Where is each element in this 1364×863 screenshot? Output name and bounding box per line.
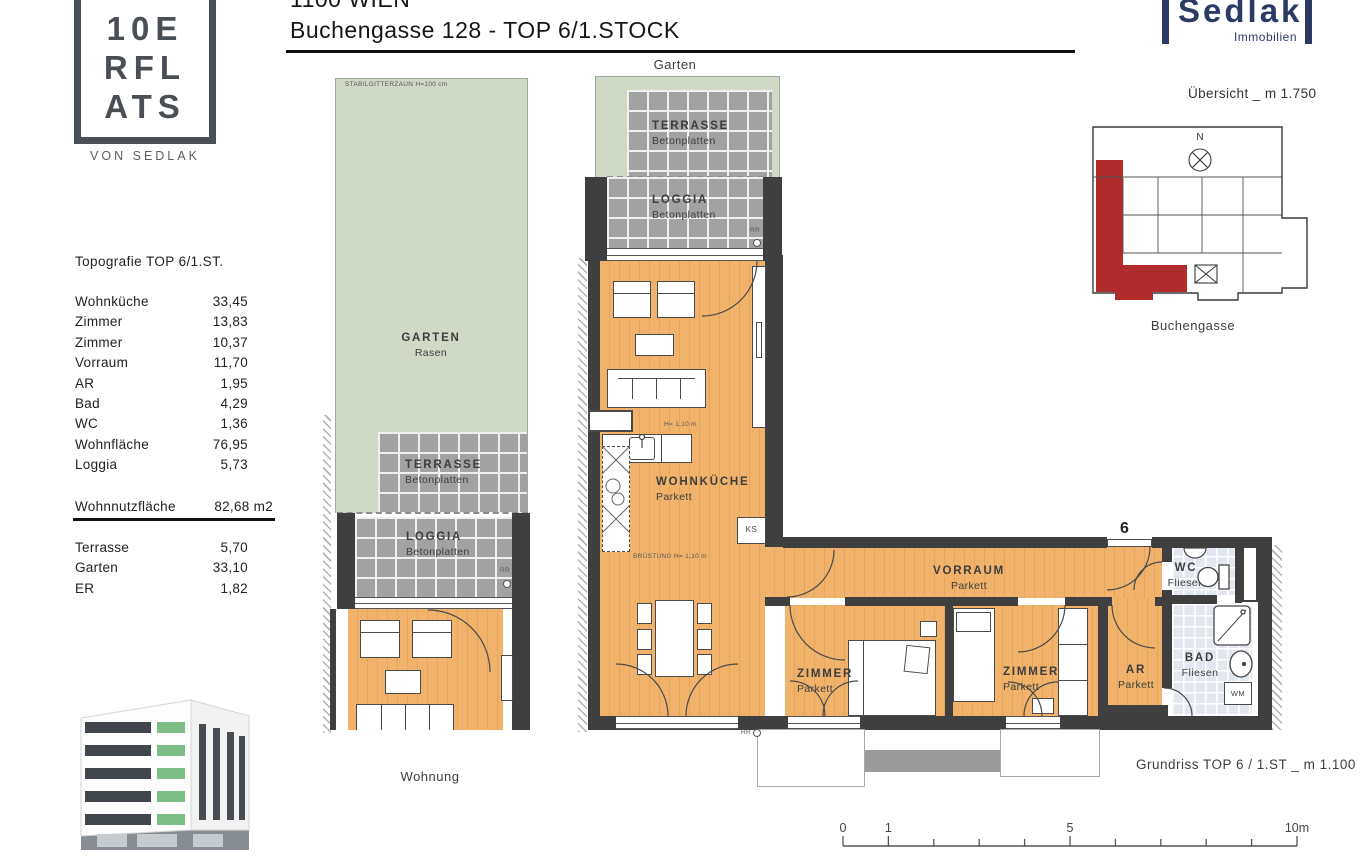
room-finish: Parkett [1003,681,1059,693]
wall-hatch [578,258,587,732]
french-balcony [1000,729,1100,777]
elevator-icon [1195,265,1217,283]
chair [637,654,652,675]
fence-note: STABILGITTERZAUN H=100 cm [345,81,448,88]
loggia-right-label: LOGGIA Betonplatten [652,194,716,221]
room-finish: Rasen [366,347,496,359]
wall-segment [783,537,1107,548]
shaft [1242,546,1258,602]
topografie-table: Wohnküche33,45 Zimmer13,83 Zimmer10,37 V… [75,294,248,478]
terrasse-left-label: TERRASSE Betonplatten [405,459,482,486]
coffee-table [635,334,674,356]
tenflats-logo: 10E RFL ATS [74,0,216,144]
sofa [356,704,454,730]
wall-segment [512,609,530,730]
wall-segment [588,261,600,730]
table-row: Zimmer13,83 [75,314,248,334]
wall-segment [585,177,607,261]
window [616,716,738,729]
logo-line-3: ATS [81,87,209,126]
kitchen-unit [602,446,630,552]
chair [697,603,712,624]
wall-segment [330,609,336,730]
room-finish: Parkett [1105,679,1167,691]
header-city: 1100 WIEN [290,0,410,13]
room-name: LOGGIA [652,194,716,206]
table-row: Wohnfläche76,95 [75,437,248,457]
total-rule [73,518,275,521]
room-finish: Fliesen [1157,577,1215,589]
garten-room-label: GARTEN Rasen [366,332,496,359]
scale-label-1: 1 [885,821,892,835]
desk [1032,698,1054,714]
sedlak-bracket-left [1162,0,1169,44]
wall-segment [845,597,1018,606]
scale-ticks [843,836,1297,846]
row-label: Bad [75,396,100,416]
room-finish: Betonplatten [405,474,482,486]
garten-direction-label: Garten [645,57,705,72]
table-row: WC1,36 [75,416,248,436]
header-rule [286,50,1075,53]
row-value: 13,83 [213,314,248,334]
entrance-door-leaf [1107,539,1152,547]
bruestung-note: BRÜSTUNG H= 1,10 m [633,553,707,560]
topografie-outdoor: Terrasse5,70 Garten33,10 ER1,82 [75,540,248,601]
row-value: 5,73 [221,457,248,477]
downpipe-icon [503,580,511,588]
wc-label: WC Fliesen [1157,562,1215,589]
row-label: Garten [75,560,118,580]
table-row: Wohnküche33,45 [75,294,248,314]
window-handle [756,322,762,358]
fridge: KS [737,517,766,544]
wall-segment [1172,595,1217,604]
logo-subtitle: VON SEDLAK [66,149,224,163]
scale-bar: 0 1 5 10m [840,822,1310,852]
chair [637,629,652,650]
table-row: Loggia5,73 [75,457,248,477]
window [588,410,633,432]
dining-table [655,600,694,677]
building-rendering [73,688,268,863]
scale-label-0: 0 [840,821,847,835]
row-label: Wohnfläche [75,437,149,457]
room-finish: Parkett [797,683,853,695]
scale-label-5: 5 [1067,821,1074,835]
table-row: Terrasse5,70 [75,540,248,560]
floorplan-page: 10E RFL ATS VON SEDLAK 1100 WIEN Bucheng… [0,0,1364,863]
room-name: ZIMMER [1003,666,1059,678]
terrasse-loggia-separator [337,512,528,514]
row-value: 5,70 [221,540,248,560]
room-finish: Parkett [656,491,750,503]
wall-segment [512,513,530,609]
room-finish: Fliesen [1168,667,1232,679]
vorraum-label: VORRAUM Parkett [904,565,1034,592]
zimmer1-label: ZIMMER Parkett [797,668,853,695]
row-label: Vorraum [75,355,128,375]
table-row: Bad4,29 [75,396,248,416]
table-row: Vorraum11,70 [75,355,248,375]
ar-label: AR Parkett [1105,664,1167,691]
scale-label-10m: 10m [1285,821,1309,835]
sedlak-logo: Sedlak Immobilien [1162,0,1312,56]
building-garage-doors [97,834,223,847]
chair [637,603,652,624]
downpipe-icon [753,729,761,737]
loggia-left-label: LOGGIA Betonplatten [406,531,470,558]
room-name: WOHNKÜCHE [656,476,750,488]
armchair [412,620,452,658]
room-name: TERRASSE [405,459,482,471]
loggia-left-window [355,597,512,609]
room-name: VORRAUM [904,565,1034,577]
wall-segment [763,177,782,261]
overview-street-label: Buchengasse [1128,318,1258,333]
room-name: AR [1105,664,1167,676]
row-value: 33,45 [213,294,248,314]
bad-label: BAD Fliesen [1168,652,1232,679]
wall-segment [1258,537,1272,730]
washing-machine: WM [1224,682,1252,705]
wall-hatch [1272,545,1282,730]
wohnkueche-label: WOHNKÜCHE Parkett [656,476,750,503]
coffee-table [385,670,421,694]
room-name: ZIMMER [797,668,853,680]
header-address: Buchengasse 128 - TOP 6/1.STOCK [290,17,680,44]
sedlak-name: Sedlak [1178,0,1302,30]
row-label: Zimmer [75,314,123,334]
zimmer2-label: ZIMMER Parkett [1003,666,1059,693]
row-value: 10,37 [213,335,248,355]
armchair [360,620,400,658]
wall-segment [765,255,783,547]
compass-north-label: N [1196,132,1203,143]
sedlak-subtitle: Immobilien [1234,30,1297,44]
loggia-right-window [607,248,763,261]
wohnung-label: Wohnung [395,769,465,784]
wall-segment [337,513,355,609]
row-label: AR [75,376,94,396]
room-finish: Betonplatten [652,209,716,221]
rr-note: RR [500,567,510,574]
window [1006,716,1060,729]
row-value: 76,95 [213,437,248,457]
wall-segment [945,597,953,716]
table-row: Zimmer10,37 [75,335,248,355]
sedlak-bracket-right [1305,0,1312,44]
row-label: Loggia [75,457,117,477]
unit-number: 6 [1120,520,1129,538]
room-finish: Betonplatten [406,546,470,558]
topografie-title: Topografie TOP 6/1.ST. [75,254,223,269]
room-name: TERRASSE [652,120,729,132]
concrete-strip [865,750,1000,772]
total-label: Wohnnutzfläche [75,499,176,514]
armchair [613,281,651,318]
room-name: BAD [1168,652,1232,664]
washing-machine-label: WM [1225,689,1251,698]
overview-map: N [1090,118,1315,310]
row-label: ER [75,581,94,601]
fridge-label: KS [738,525,765,534]
downpipe-icon [753,239,761,247]
wall-segment [1235,540,1242,603]
logo-line-1: 10E [81,9,209,48]
row-value: 11,70 [214,355,248,375]
room-finish: Parkett [904,580,1034,592]
room-name: GARTEN [366,332,496,344]
pillow [904,645,931,674]
overview-title: Übersicht _ m 1.750 [1188,86,1316,101]
topografie-total-row: Wohnnutzfläche 82,68 m2 [75,499,273,514]
wardrobe [1058,608,1088,716]
chair [697,629,712,650]
kitchen-sink [629,437,655,460]
row-label: Wohnküche [75,294,149,314]
row-value: 1,82 [221,581,248,601]
chair [697,654,712,675]
wall-segment [1162,545,1172,562]
room-finish: Betonplatten [652,135,729,147]
nightstand [920,621,937,637]
row-value: 4,29 [221,396,248,416]
row-label: Zimmer [75,335,123,355]
rr-note: RR [741,729,751,736]
room-name: WC [1157,562,1215,574]
row-value: 1,95 [221,376,248,396]
window [501,655,513,701]
room-name: LOGGIA [406,531,470,543]
armchair [657,281,695,318]
table-row: AR1,95 [75,376,248,396]
rr-note: RR [750,227,760,234]
height-note: H= 1,10 m [664,421,697,428]
row-value: 33,10 [213,560,248,580]
row-label: WC [75,416,98,436]
terrasse-right-label: TERRASSE Betonplatten [652,120,729,147]
logo-line-2: RFL [81,48,209,87]
table-row: Garten33,10 [75,560,248,580]
pillow [956,612,991,632]
row-label: Terrasse [75,540,129,560]
wall-segment [1098,705,1168,716]
window [788,716,860,729]
wall-segment [765,597,790,606]
sofa [607,369,706,408]
row-value: 1,36 [221,416,248,436]
grundriss-caption: Grundriss TOP 6 / 1.ST _ m 1.100 [1136,757,1356,772]
table-row: ER1,82 [75,581,248,601]
french-balcony [757,729,865,787]
total-value: 82,68 m2 [214,499,273,514]
